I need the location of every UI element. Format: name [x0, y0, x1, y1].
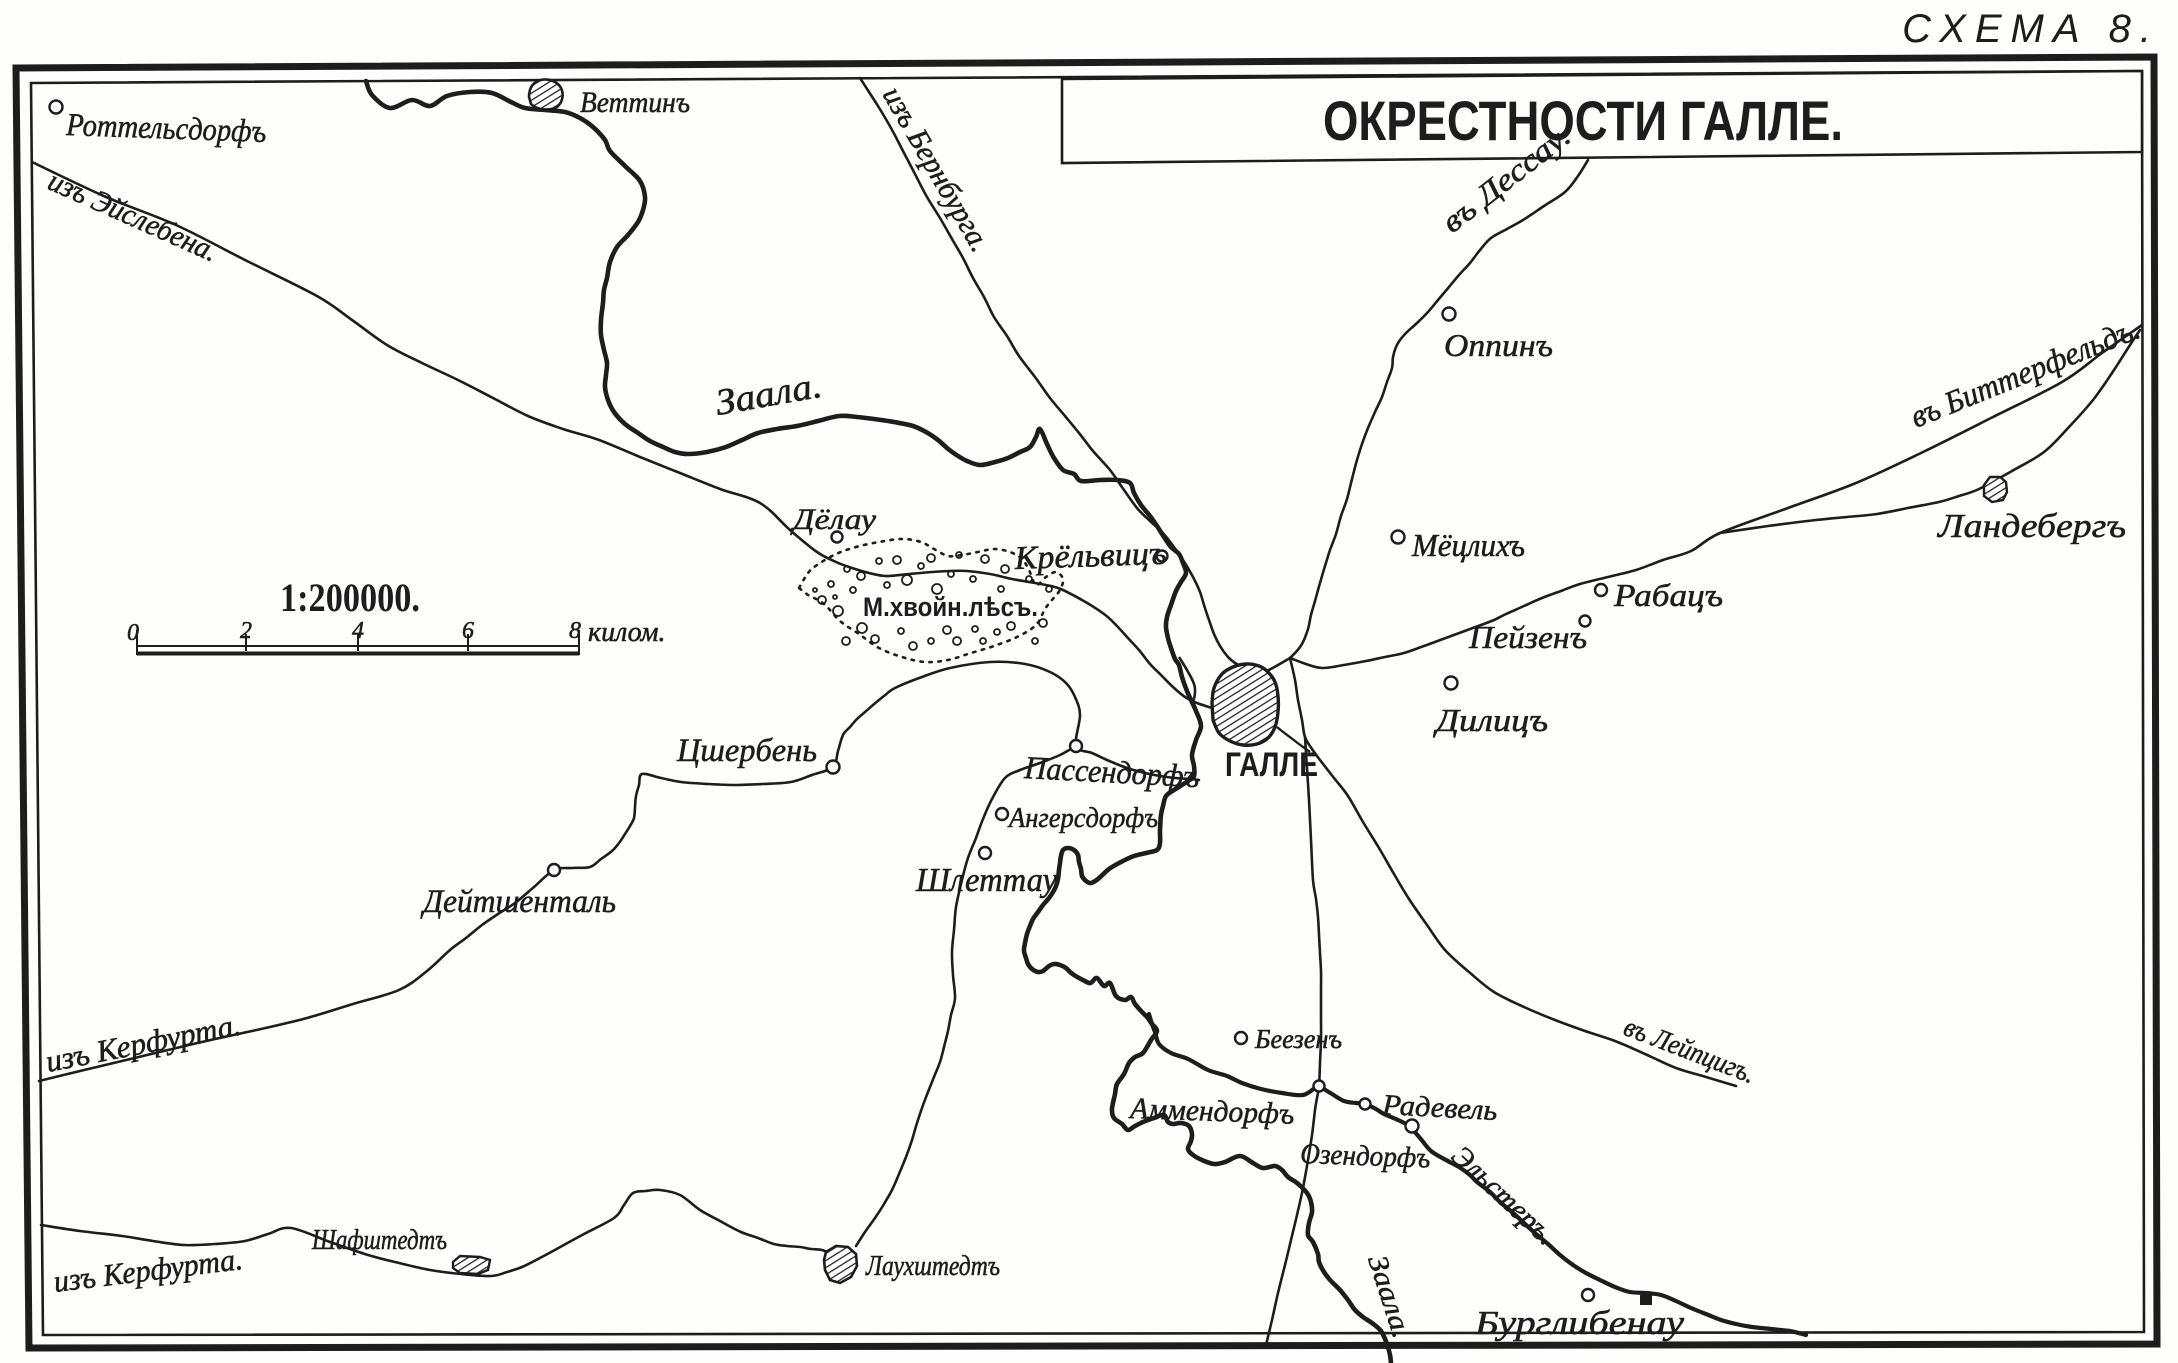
svg-text:Озендорфъ: Озендорфъ: [1300, 1138, 1431, 1175]
svg-text:Цшербень: Цшербень: [676, 733, 817, 769]
svg-text:Беезенъ: Беезенъ: [1254, 1024, 1342, 1054]
svg-text:Роттельсдорфъ: Роттельсдорфъ: [65, 106, 267, 149]
svg-text:Ангерсдорфъ: Ангерсдорфъ: [1007, 802, 1158, 834]
svg-text:0: 0: [127, 620, 139, 646]
svg-text:Ландебергъ: Ландебергъ: [1937, 508, 2126, 545]
svg-text:8: 8: [569, 618, 581, 644]
svg-text:Аммендорфъ: Аммендорфъ: [1128, 1092, 1295, 1131]
svg-text:6: 6: [462, 618, 474, 644]
svg-text:М.хвойн.лѣсъ.: М.хвойн.лѣсъ.: [863, 592, 1038, 622]
svg-text:4: 4: [352, 618, 364, 644]
svg-text:1:200000.: 1:200000.: [280, 575, 420, 620]
svg-text:СХЕМА 8.: СХЕМА 8.: [1902, 7, 2160, 51]
svg-text:ГАЛЛЕ: ГАЛЛЕ: [1225, 746, 1318, 784]
svg-text:Крёльвицъ: Крёльвицъ: [1013, 536, 1167, 577]
svg-text:ОКРЕСТНОСТИ ГАЛЛЕ.: ОКРЕСТНОСТИ ГАЛЛЕ.: [1323, 89, 1843, 152]
svg-text:Лаухштедтъ: Лаухштедтъ: [865, 1251, 1000, 1282]
svg-text:2: 2: [240, 618, 252, 644]
svg-text:Мёцлихъ: Мёцлихъ: [1411, 527, 1525, 563]
svg-text:Шлеттау: Шлеттау: [915, 862, 1058, 899]
svg-text:килом.: килом.: [588, 617, 665, 648]
svg-text:Дилицъ: Дилицъ: [1433, 702, 1548, 738]
svg-text:Радевель: Радевель: [1381, 1089, 1499, 1127]
svg-text:Веттинъ: Веттинъ: [580, 86, 690, 119]
svg-text:Рабацъ: Рабацъ: [1613, 577, 1723, 613]
svg-text:Дейтшенталь: Дейтшенталь: [420, 884, 616, 920]
svg-text:Оппинъ: Оппинъ: [1444, 327, 1553, 363]
svg-text:Шафштедтъ: Шафштедтъ: [311, 1224, 447, 1256]
svg-text:Пейзенъ: Пейзенъ: [1468, 619, 1587, 655]
svg-text:Бурглибенау: Бурглибенау: [1474, 1305, 1685, 1342]
svg-text:Дёлау: Дёлау: [790, 503, 877, 536]
